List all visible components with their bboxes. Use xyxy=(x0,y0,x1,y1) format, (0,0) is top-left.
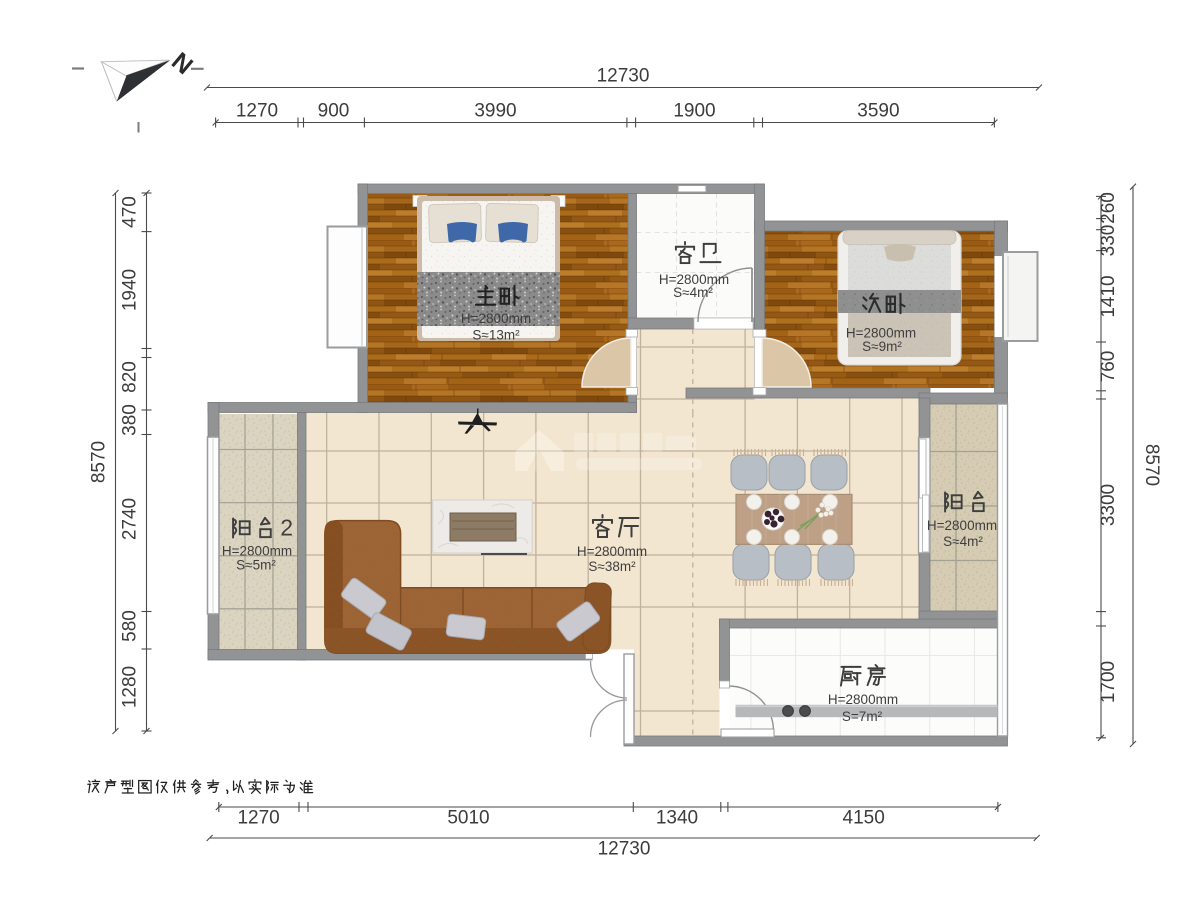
svg-text:5010: 5010 xyxy=(447,808,489,829)
svg-text:1280: 1280 xyxy=(120,666,141,708)
svg-text:H=2800mm: H=2800mm xyxy=(927,518,997,533)
svg-text:380: 380 xyxy=(120,404,141,436)
svg-text:H=2800mm: H=2800mm xyxy=(461,311,531,326)
svg-text:900: 900 xyxy=(318,101,350,122)
svg-text:1940: 1940 xyxy=(120,269,141,311)
svg-text:470: 470 xyxy=(120,196,141,228)
svg-text:H=2800mm: H=2800mm xyxy=(222,544,292,559)
svg-text:260: 260 xyxy=(1098,192,1119,224)
svg-text:12730: 12730 xyxy=(598,839,651,860)
svg-text:760: 760 xyxy=(1098,351,1119,383)
svg-text:12730: 12730 xyxy=(597,66,650,87)
svg-text:S≈38m²: S≈38m² xyxy=(588,559,636,574)
svg-text:N: N xyxy=(166,47,198,80)
svg-text:1340: 1340 xyxy=(656,808,698,829)
svg-text:S=7m²: S=7m² xyxy=(842,709,883,724)
svg-text:1700: 1700 xyxy=(1098,661,1119,703)
svg-text:3990: 3990 xyxy=(474,101,516,122)
svg-text:2740: 2740 xyxy=(120,498,141,540)
svg-text:8570: 8570 xyxy=(1141,444,1162,486)
svg-text:330: 330 xyxy=(1098,225,1119,257)
svg-text:S≈4m²: S≈4m² xyxy=(943,534,983,549)
svg-text:S≈9m²: S≈9m² xyxy=(862,339,902,354)
svg-text:H=2800mm: H=2800mm xyxy=(577,544,647,559)
svg-text:S≈13m²: S≈13m² xyxy=(472,328,520,343)
svg-text:3300: 3300 xyxy=(1098,484,1119,526)
svg-text:2: 2 xyxy=(280,515,293,541)
svg-text:1270: 1270 xyxy=(236,101,278,122)
svg-text:3590: 3590 xyxy=(857,101,899,122)
svg-text:S≈5m²: S≈5m² xyxy=(236,558,276,573)
svg-text:1900: 1900 xyxy=(673,101,715,122)
svg-text:8570: 8570 xyxy=(89,441,110,483)
svg-text:H=2800mm: H=2800mm xyxy=(828,692,898,707)
svg-text:4150: 4150 xyxy=(843,808,885,829)
svg-text:1270: 1270 xyxy=(237,808,279,829)
svg-text:1410: 1410 xyxy=(1098,275,1119,317)
svg-text:S≈4m²: S≈4m² xyxy=(673,285,713,300)
svg-text:820: 820 xyxy=(120,361,141,393)
svg-text:580: 580 xyxy=(120,610,141,642)
